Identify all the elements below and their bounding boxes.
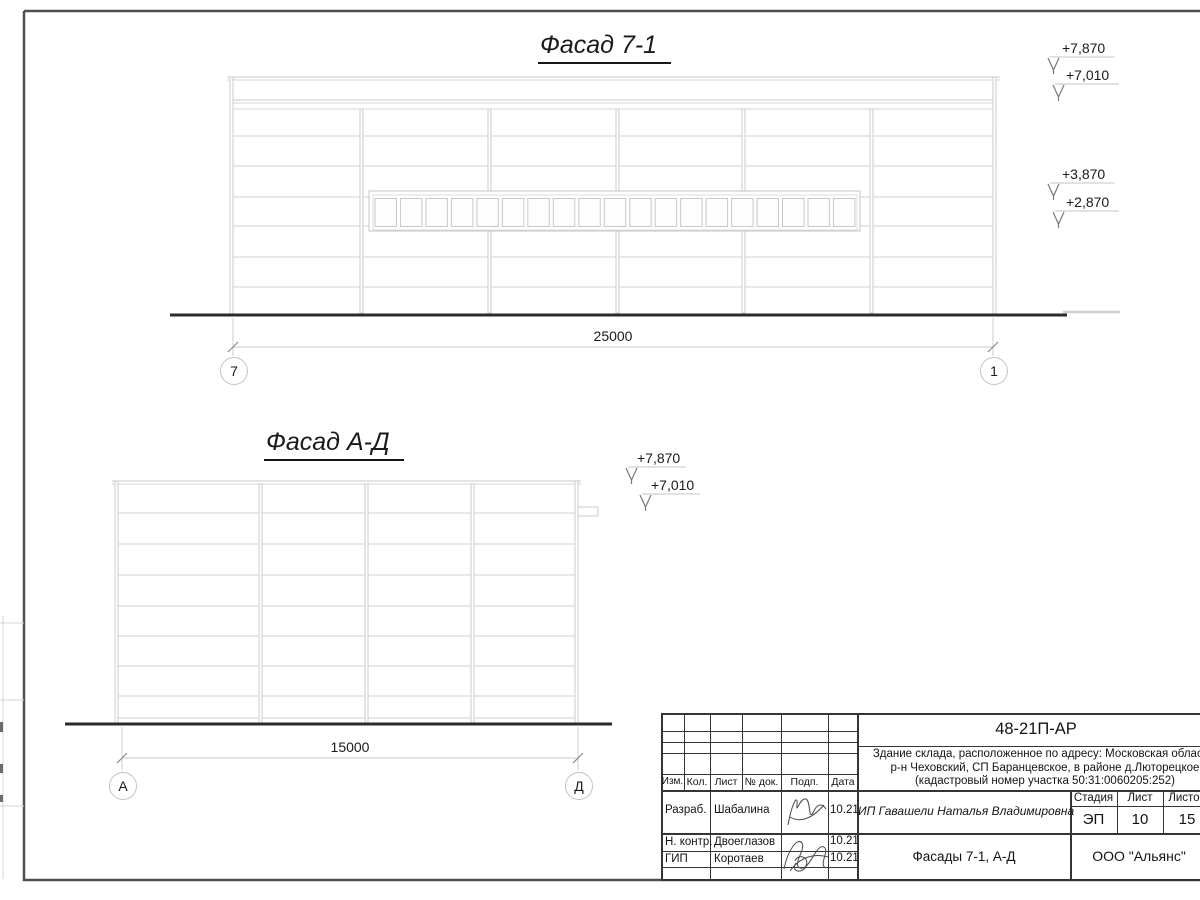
axis-bubble-7: 7 xyxy=(220,357,248,385)
axis-bubble-1: 1 xyxy=(980,357,1008,385)
elevation-label: +3,870 xyxy=(1062,166,1105,182)
wall-protrusion xyxy=(578,507,598,516)
project-description-line1: Здание склада, расположенное по адресу: … xyxy=(857,748,1200,762)
sheet-number: 10 xyxy=(1117,806,1163,833)
col-header-kol: Кол. xyxy=(684,774,710,790)
name-dvoeglazov: Двоеглазов xyxy=(714,836,775,848)
sheet-label: Лист xyxy=(1117,790,1163,806)
margin-stamp-fragment xyxy=(0,764,3,773)
col-header-podp: Подп. xyxy=(781,774,828,790)
organization-name: ООО "Альянс" xyxy=(1070,833,1200,880)
project-description-line3: (кадастровый номер участка 50:31:0060205… xyxy=(857,775,1200,789)
dimension-text-15000: 15000 xyxy=(331,739,370,755)
elevation-label: +7,870 xyxy=(1062,40,1105,56)
name-shabalina: Шабалина xyxy=(714,804,770,816)
window-band xyxy=(369,191,860,231)
elevation-label: +7,870 xyxy=(637,450,680,466)
doc-number: 48-21П-АР xyxy=(857,713,1200,746)
signature-nkontr-gip xyxy=(784,841,828,871)
role-gip: ГИП xyxy=(665,853,688,865)
sheets-label: Листов xyxy=(1163,790,1200,806)
col-header-data: Дата xyxy=(828,774,858,790)
title-block: Изм. Кол. Лист № док. Подп. Дата Разраб.… xyxy=(661,713,1200,881)
date-nkontr: 10.21 xyxy=(830,835,859,847)
dimension-text-25000: 25000 xyxy=(594,328,633,344)
project-description-line2: р-н Чеховский, СП Баранцевское, в районе… xyxy=(857,762,1200,776)
sheets-total: 15 xyxy=(1163,806,1200,833)
elevation-label: +7,010 xyxy=(651,477,694,493)
role-nkontr: Н. контр. xyxy=(665,836,712,848)
facade-7-1-drawing xyxy=(170,57,1120,356)
elevation-label: +7,010 xyxy=(1066,67,1109,83)
col-header-izm: Изм. xyxy=(661,774,684,790)
margin-stamp-fragment xyxy=(0,795,3,802)
axis-bubble-a: А xyxy=(109,772,137,800)
date-gip: 10.21 xyxy=(830,852,859,864)
col-header-doc: № док. xyxy=(742,774,781,790)
role-razrab: Разраб. xyxy=(665,804,706,816)
signature-razrab xyxy=(788,799,826,825)
drawing-title: Фасады 7-1, А-Д xyxy=(858,833,1070,880)
facade-a-d-drawing xyxy=(65,467,700,770)
axis-bubble-d: Д xyxy=(565,772,593,800)
name-korotaev: Коротаев xyxy=(714,853,764,865)
client-name: ИП Гавашели Наталья Владимировна xyxy=(858,790,1070,833)
project-description: Здание склада, расположенное по адресу: … xyxy=(857,748,1200,789)
stage-label: Стадия xyxy=(1070,790,1117,806)
drawing-sheet: Фасад 7-1 Фасад А-Д +7,870 +7,010 +3,870… xyxy=(0,0,1200,900)
elevation-label: +2,870 xyxy=(1066,194,1109,210)
facade-a-d-title: Фасад А-Д xyxy=(264,428,404,461)
date-razrab: 10.21 xyxy=(830,804,859,816)
signatures xyxy=(780,791,832,877)
col-header-list: Лист xyxy=(710,774,742,790)
stage-value: ЭП xyxy=(1070,806,1117,833)
margin-stamp-fragment xyxy=(0,722,3,732)
facade-7-1-title: Фасад 7-1 xyxy=(538,31,671,64)
